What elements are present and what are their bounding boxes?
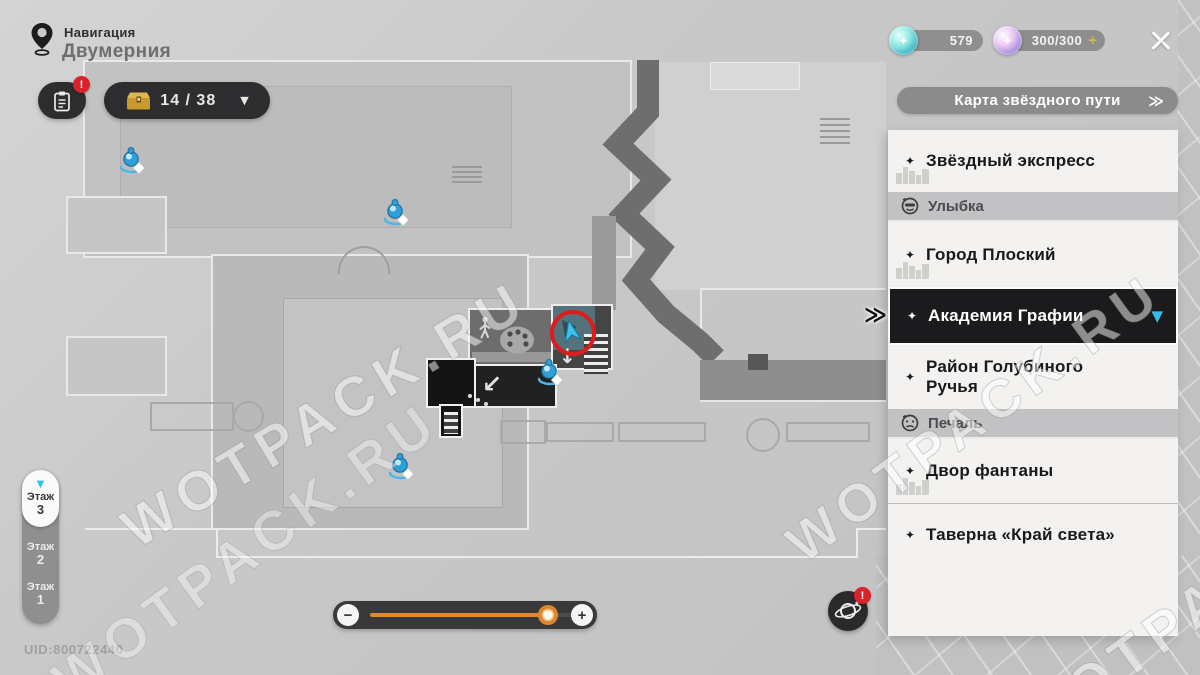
diamond-bullet-icon: ✦ — [905, 370, 915, 384]
map-room — [68, 198, 165, 252]
floor-selector: ▼ Этаж 3 Этаж 2 Этаж 1 — [22, 470, 59, 624]
zoom-slider-track[interactable] — [370, 613, 582, 617]
city-silhouette-icon — [896, 259, 932, 279]
location-pin-icon — [30, 22, 54, 56]
sidebar-item-label: Академия Графии — [928, 306, 1084, 326]
map-room — [68, 338, 165, 394]
map-edge-line — [856, 528, 858, 558]
selected-item-pointer-icon: ≫ — [864, 303, 887, 328]
zoom-slider[interactable]: − + — [333, 601, 597, 629]
sidebar-item-fountain-court[interactable]: ✦ Двор фантаны — [888, 439, 1178, 503]
sidebar-item-label: Таверна «Край света» — [926, 525, 1115, 545]
double-chevron-right-icon: ≫ — [1148, 92, 1164, 110]
trailblaze-power-value: 300/300 — [1032, 33, 1083, 48]
sidebar-item-pigeon-creek[interactable]: ✦ Район Голубиного Ручья — [888, 345, 1178, 409]
sidebar-item-tavern[interactable]: ✦ Таверна «Край света» — [888, 504, 1178, 566]
collectible-sprite-icon — [387, 452, 417, 484]
target-highlight-ring — [550, 310, 596, 356]
map-edge-line — [85, 528, 218, 530]
map-planter — [546, 422, 614, 442]
map-planter — [786, 422, 870, 442]
map-tblock — [428, 360, 474, 406]
sidebar-section-sorrow: Печаль — [888, 409, 1178, 439]
floor-button-3[interactable]: ▼ Этаж 3 — [22, 470, 59, 527]
chevron-down-icon: ▼ — [240, 94, 248, 107]
collectible-marker[interactable] — [387, 452, 417, 484]
diamond-bullet-icon: ✦ — [905, 464, 915, 478]
star-rail-map-label: Карта звёздного пути — [954, 92, 1120, 109]
map-planter — [150, 402, 234, 431]
sidebar-item-label: Звёздный экспресс — [926, 151, 1095, 171]
sidebar-item-star-express[interactable]: ✦ Звёздный экспресс — [888, 130, 1178, 192]
floor-number: 1 — [37, 593, 44, 607]
sidebar-empty-space — [888, 566, 1178, 636]
map-ladder — [820, 118, 850, 144]
collectible-sprite-icon — [536, 358, 566, 390]
trail-dot — [484, 402, 488, 406]
map-edge-line — [216, 556, 858, 558]
tasks-button[interactable]: ! — [38, 82, 86, 119]
diamond-bullet-icon: ✦ — [905, 248, 915, 262]
sidebar-item-flat-city[interactable]: ✦ Город Плоский — [888, 222, 1178, 287]
trail-dot — [468, 394, 472, 398]
map-stairs — [444, 412, 458, 434]
sidebar-item-label: Двор фантаны — [926, 461, 1053, 481]
floor-number: 3 — [37, 503, 44, 517]
map-circle — [746, 418, 780, 452]
star-rail-map-button[interactable]: Карта звёздного пути ≫ — [897, 87, 1178, 114]
trail-dot — [476, 398, 480, 402]
diamond-bullet-icon: ✦ — [905, 154, 915, 168]
southwest-arrow-icon: ↙ — [482, 370, 502, 398]
smile-emoji-icon — [900, 196, 920, 216]
walking-person-icon — [478, 316, 492, 342]
map-planter — [500, 420, 546, 444]
close-button[interactable] — [1146, 26, 1176, 56]
city-silhouette-icon — [896, 475, 932, 495]
map-corridor-right — [700, 360, 886, 400]
map-pillar — [592, 216, 616, 310]
zoom-in-button[interactable]: + — [571, 604, 593, 626]
add-power-button[interactable]: + — [1088, 32, 1097, 49]
region-title: Двумерния — [62, 41, 171, 63]
sidebar-section-label: Улыбка — [928, 198, 984, 215]
palette-icon — [498, 324, 536, 356]
sidebar-section-smile: Улыбка — [888, 192, 1178, 222]
collectible-marker[interactable] — [382, 198, 412, 230]
diamond-bullet-icon: ✦ — [907, 309, 917, 323]
collectible-marker[interactable] — [536, 358, 566, 390]
floor-button-2[interactable]: Этаж 2 — [27, 541, 54, 567]
map-ladder — [452, 166, 482, 184]
chest-counter-value: 14 / 38 — [160, 92, 216, 110]
clipboard-icon — [52, 90, 72, 112]
trailblaze-power-icon: ✦ — [993, 26, 1022, 55]
collectible-marker[interactable] — [118, 146, 148, 178]
collectible-sprite-icon — [382, 198, 412, 230]
stellar-jade-icon: ✦ — [889, 26, 918, 55]
chevron-down-cyan-icon[interactable]: ▼ — [1151, 307, 1163, 325]
map-edge-line — [700, 400, 886, 402]
map-screen: ↓ ↙ — [0, 0, 1200, 675]
map-edge-line — [216, 528, 218, 558]
floor-number: 2 — [37, 553, 44, 567]
map-block-dark — [748, 354, 768, 370]
map-planter — [618, 422, 706, 442]
alert-badge: ! — [73, 76, 90, 93]
stellar-jade-value: 579 — [950, 33, 973, 48]
nav-label: Навигация — [64, 25, 136, 40]
treasure-chest-icon — [125, 90, 152, 112]
sidebar-item-label: Район Голубиного Ручья — [926, 357, 1101, 396]
collectible-sprite-icon — [118, 146, 148, 178]
sidebar-item-academy-selected[interactable]: ✦ Академия Графии ▼ — [888, 287, 1178, 345]
sidebar-section-label: Печаль — [928, 415, 983, 432]
zoom-slider-knob[interactable] — [540, 607, 556, 623]
sad-emoji-icon — [900, 413, 920, 433]
world-overview-button[interactable]: ! — [828, 591, 868, 631]
map-street-pattern — [1178, 0, 1200, 556]
chest-counter-button[interactable]: 14 / 38 ▼ — [104, 82, 270, 119]
map-edge-line — [856, 528, 886, 530]
zoom-out-button[interactable]: − — [337, 604, 359, 626]
alert-badge: ! — [854, 587, 871, 604]
floor-button-1[interactable]: Этаж 1 — [27, 581, 54, 607]
uid-label: UID:800722440 — [24, 642, 124, 657]
location-list-panel: ✦ Звёздный экспресс Улыбка ✦ Город Плоск… — [888, 130, 1178, 636]
zoom-slider-fill — [370, 613, 548, 617]
map-fountain-circle — [233, 401, 264, 432]
floor-current-arrow-icon: ▼ — [37, 480, 45, 490]
diamond-bullet-icon: ✦ — [905, 528, 915, 542]
sidebar-item-label: Город Плоский — [926, 245, 1056, 265]
